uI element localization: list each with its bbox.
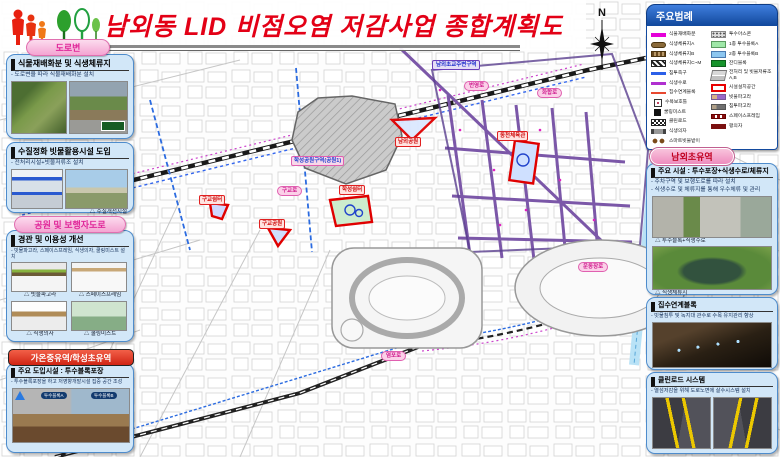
- legend-item: 스페이스프레임: [711, 112, 775, 122]
- panel-planter: 식물재배화분 및 식생체류지 - 도로변을 따라 식물재배화분 설치: [6, 54, 134, 139]
- swatch-flat-bench: [711, 124, 726, 129]
- section-pill-namoecho: 남외초유역: [650, 148, 734, 165]
- legend-item: 시설설치공간: [711, 83, 775, 93]
- caption-permeable-parking: △ 투수블록+식생수로: [651, 238, 773, 245]
- section-pill-roadside: 도로변: [26, 39, 110, 56]
- panel-clean-road-title: 클린로드 시스템: [651, 377, 773, 387]
- caption-space-frame: △ 스페이스프레임: [71, 292, 129, 299]
- panel-landscape-subtitle: - 빗물파고라, 스페이스프레임, 식생의자, 쿨링미스트 설치: [11, 248, 129, 261]
- caption-vegetation-bench: △ 식생의자: [11, 331, 69, 338]
- panel-collector-subtitle: - 빗물침투 및 녹지대 관수로 수목 유지관리 향상: [651, 313, 773, 320]
- map-label-gugyo-park: 구교공원: [259, 219, 285, 229]
- map-label-park-zone: 학성공원구역(공원1): [291, 156, 344, 166]
- swatch-tree-guard: [654, 99, 662, 107]
- legend-item: 클린로드: [651, 117, 711, 127]
- svg-text:N: N: [598, 7, 606, 19]
- photo-storage-site: [65, 169, 128, 209]
- legend-item: 식생체류지B: [651, 49, 711, 59]
- legend-item: 쿨링미스트: [651, 108, 711, 118]
- swatch-smart-rain-gutter: [651, 138, 666, 144]
- swatch-clean-road: [651, 119, 666, 126]
- page-title: 남외동 LID 비점오염 저감사업 종합계획도: [104, 7, 563, 43]
- photo-bioretention: [652, 246, 772, 290]
- panel-landscape: 경관 및 이용성 개선 - 빗물파고라, 스페이스프레임, 식생의자, 쿨링미스…: [6, 230, 134, 342]
- swatch-planter-box: [651, 33, 666, 37]
- legend-item: 투수아스콘: [711, 30, 775, 40]
- map-label-road-byeongyeong: 번영로: [464, 81, 489, 91]
- map-label-road-gugyo: 구교로: [277, 186, 302, 196]
- image-tag-block-b: 투수블록B: [91, 392, 117, 399]
- legend-column-left: 식물재배화분 식생체류지A 식생체류지B 식생체류지C~M 침투측구 식생수로 …: [651, 30, 711, 146]
- legend-item: 2종 투수블록B: [711, 49, 775, 59]
- swatch-pretreatment-storage: [710, 70, 727, 81]
- swatch-vegetation-bench: [651, 129, 666, 134]
- panel-clean-road: 클린로드 시스템 - 열섬저감을 위해 도로노면에 살수시스템 설치: [646, 372, 778, 454]
- legend-title: 주요범례: [646, 4, 778, 25]
- panel-planter-title: 식물재배화분 및 식생체류지: [11, 59, 129, 71]
- swatch-permeable-block-a: [711, 41, 726, 48]
- legend-item: 식생체류지A: [651, 40, 711, 50]
- map-label-school-zone: 남외초교주변구역: [432, 60, 480, 70]
- panel-clean-road-subtitle: - 열섬저감을 위해 도로노면에 살수시스템 설치: [651, 388, 773, 395]
- swatch-infiltration-gutter: [651, 72, 666, 75]
- panel-water-quality: 수질정화 빗물활용시설 도입 - 전처리시설+빗물저류조 설치 △ 수질개선시설: [6, 142, 134, 213]
- image-tag-block-a: 투수블록A: [41, 392, 67, 399]
- panel-namoe-title: 주요 시설 : 투수포장+식생수로/체류지: [651, 168, 773, 178]
- swatch-permeable-block-b: [711, 51, 726, 58]
- legend-panel: 주요범례 식물재배화분 식생체류지A 식생체류지B 식생체류지C~M 침투측구 …: [646, 4, 778, 150]
- photo-pavement-cross-section: 투수블록A 투수블록B: [12, 388, 130, 443]
- photo-planter-boxes: [11, 81, 67, 134]
- photo-permeable-parking: [652, 196, 772, 238]
- legend-item: 침투측구: [651, 69, 711, 79]
- photo-pretreatment-facility: [11, 169, 63, 209]
- legend-column-right: 투수아스콘 1종 투수블록A 2종 투수블록B 잔디블록 전처리 및 빗물저류조…: [711, 30, 775, 146]
- panel-namoe-subtitle2: - 식생수로 및 체류지를 통해 우수체류 및 관리: [651, 187, 773, 194]
- panel-landscape-title: 경관 및 이용성 개선: [11, 235, 129, 247]
- legend-item: 식생수로: [651, 78, 711, 88]
- photo-roadside-vegetation: [69, 81, 128, 134]
- swatch-collector-block: [651, 92, 666, 95]
- map-label-namoe-park: 남외공원: [395, 137, 421, 147]
- caption-rain-pergola: △ 빗물파고라: [11, 292, 69, 299]
- map-label-road-hwahap: 화합로: [537, 88, 562, 98]
- legend-item: 집수연계블록: [651, 88, 711, 98]
- plan-poster: N 남외초교주변구역 번영로 화합로 구교로 염포로 운동장로 학성공원구역(공…: [0, 0, 780, 457]
- panel-permeable-block: 주요 도입시설 : 투수블록포장 - 투수블록포장을 하고 저영향개발시설 집중…: [6, 363, 134, 453]
- photo-rain-pergola: [11, 262, 67, 292]
- panel-namoe-subtitle1: - 주차구역 및 보행도로를 따라 설치: [651, 179, 773, 186]
- legend-item: 침투파고라: [711, 102, 775, 112]
- legend-item: 평의자: [711, 122, 775, 132]
- legend-item: 잔디블록: [711, 59, 775, 69]
- legend-item: 빗물파고라: [711, 92, 775, 102]
- swatch-facility-space: [711, 84, 726, 92]
- swatch-cooling-mist: [654, 109, 661, 116]
- swatch-bioretention-a: [651, 42, 666, 48]
- swatch-grass-block: [711, 60, 726, 67]
- photo-collector-block-night: [652, 322, 772, 368]
- section-pill-park-walkway: 공원 및 보행자도로: [14, 216, 126, 233]
- panel-water-quality-subtitle: - 전처리시설+빗물저류조 설치: [11, 160, 129, 167]
- legend-item: 수목보호틀: [651, 98, 711, 108]
- caption-water-facility: △ 수질개선시설: [11, 209, 129, 216]
- panel-permeable-title: 주요 도입시설 : 투수블록포장: [11, 368, 129, 378]
- swatch-space-frame: [711, 114, 726, 119]
- swatch-vegetated-swale: [651, 82, 666, 85]
- map-label-gugyo-rest: 구교쉼터: [199, 195, 225, 205]
- photo-cooling-mist: [71, 301, 127, 331]
- map-label-road-yeompo: 염포로: [381, 351, 406, 361]
- vendor-logo-icon: [15, 391, 25, 400]
- map-label-hakseong-rest: 학성쉼터: [339, 185, 365, 195]
- swatch-bioretention-cm: [651, 60, 666, 67]
- panel-permeable-subtitle: - 투수블록포장을 하고 저영향개발시설 집중 공간 조성: [11, 379, 129, 385]
- photo-vegetation-bench: [11, 301, 67, 331]
- caption-cooling-mist: △ 쿨링미스트: [71, 331, 129, 338]
- photo-space-frame: [71, 262, 127, 292]
- legend-item: 식생체류지C~M: [651, 59, 711, 69]
- panel-planter-subtitle: - 도로변을 따라 식물재배화분 설치: [11, 72, 129, 79]
- photo-clean-road-1: [652, 397, 711, 449]
- photo-inset-chip: [101, 121, 125, 131]
- map-label-gymnasium: 동천체육관: [497, 131, 528, 141]
- swatch-permeable-asphalt: [711, 31, 726, 38]
- legend-item: 식물재배화분: [651, 30, 711, 40]
- legend-item: 식생의자: [651, 127, 711, 137]
- legend-item: 스마트빗물받이: [651, 137, 711, 147]
- map-label-road-undongjang: 운동장로: [578, 262, 608, 272]
- photo-clean-road-2: [713, 397, 772, 449]
- legend-item: 전처리 및 빗물저류조A,B: [711, 69, 775, 83]
- section-pill-gaon-hakseong: 가온중유역/학성초유역: [8, 349, 134, 366]
- panel-water-quality-title: 수질정화 빗물활용시설 도입: [11, 147, 129, 159]
- swatch-bioretention-b: [651, 51, 666, 57]
- swatch-infiltration-pergola: [711, 104, 726, 110]
- legend-item: 1종 투수블록A: [711, 40, 775, 50]
- panel-namoe-main: 주요 시설 : 투수포장+식생수로/체류지 - 주차구역 및 보행도로를 따라 …: [646, 163, 778, 295]
- swatch-rain-pergola: [711, 94, 726, 100]
- panel-collector-block: 집수연계블록 - 빗물침투 및 녹지대 관수로 수목 유지관리 향상: [646, 297, 778, 370]
- panel-collector-title: 집수연계블록: [651, 302, 773, 312]
